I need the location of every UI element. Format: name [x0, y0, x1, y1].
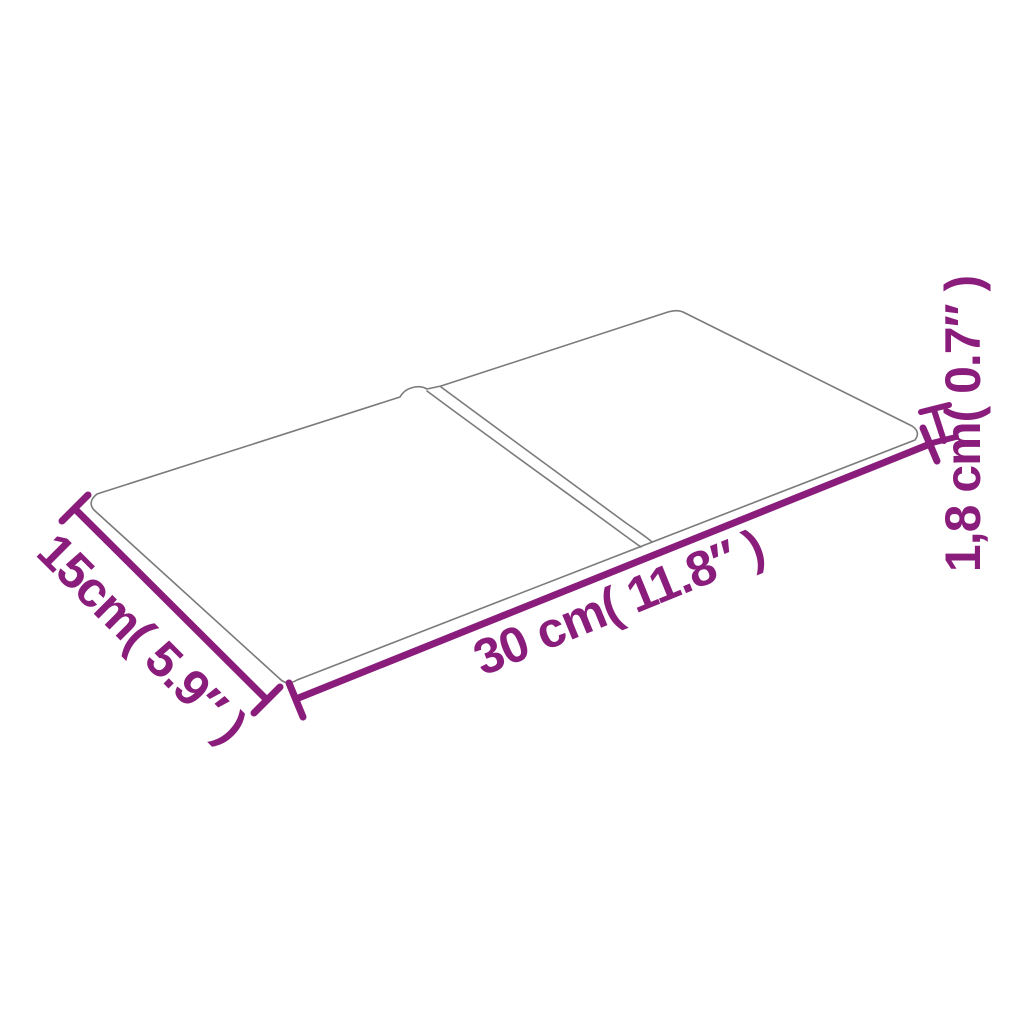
- thickness-dimension-label: 1,8 cm( 0.7″ ): [935, 276, 991, 572]
- product-dimension-image: 30 cm( 11.8″ ) 15cm( 5.9″ ) 1,8 cm( 0.7″…: [0, 0, 1024, 1024]
- dimension-diagram-canvas: 30 cm( 11.8″ ) 15cm( 5.9″ ) 1,8 cm( 0.7″…: [0, 0, 1024, 1024]
